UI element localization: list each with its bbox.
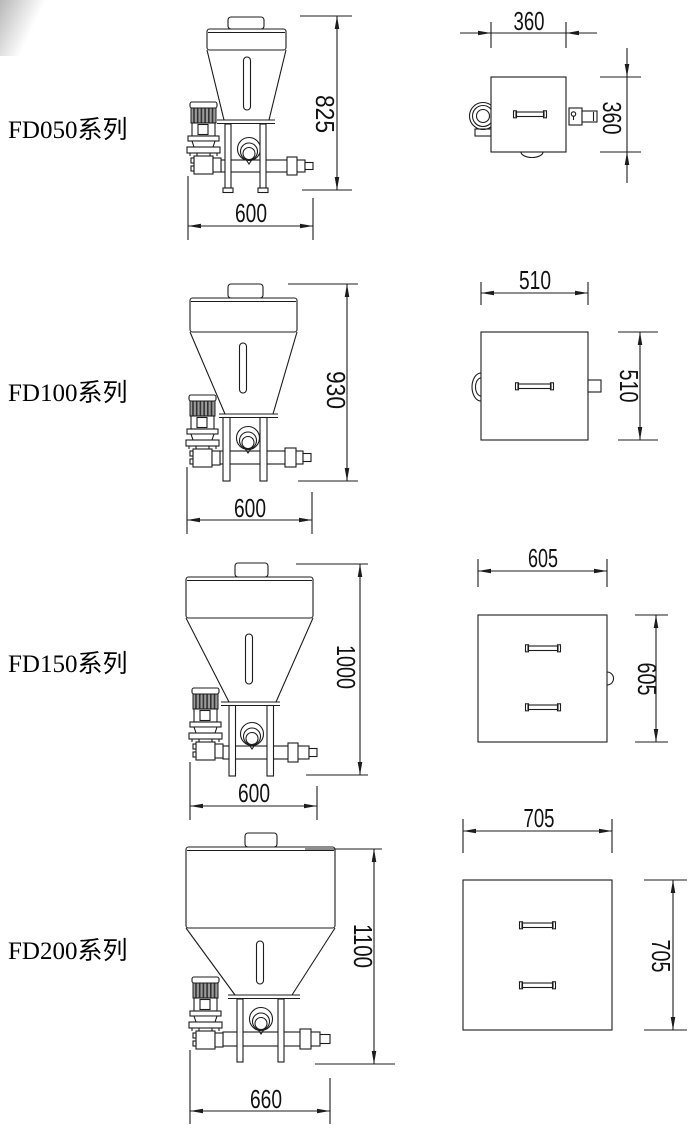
fd050-series-label: FD050系列 <box>8 116 127 144</box>
fd100-height-value: 930 <box>321 371 351 409</box>
row-fd150: FD150系列 1000 600 605 605 <box>8 543 668 820</box>
fd050-front-view <box>187 17 313 193</box>
fd200-topview-width-value: 705 <box>524 803 555 833</box>
fd100-top-view <box>472 282 658 440</box>
fd150-series-label: FD150系列 <box>8 650 127 678</box>
fd150-front-view <box>186 563 317 776</box>
fd150-width-value: 600 <box>238 778 270 808</box>
fd100-front-view <box>186 284 311 481</box>
fd100-width-value: 600 <box>234 493 266 523</box>
row-fd050: FD050系列 825 600 360 360 <box>8 6 641 240</box>
fd150-topview-depth-value: 605 <box>632 663 662 696</box>
fd050-height-value: 825 <box>310 95 340 133</box>
fd200-front-view <box>186 833 335 1062</box>
fd150-topview-width-value: 605 <box>528 543 558 573</box>
fd200-topview-depth-value: 705 <box>646 940 676 973</box>
fd200-series-label: FD200系列 <box>8 937 127 965</box>
fd200-top-view <box>463 819 687 1030</box>
fd200-height-value: 1100 <box>348 924 378 968</box>
fd100-topview-width-value: 510 <box>519 265 551 295</box>
dimension-drawing: FD050系列 825 600 360 360 FD100系列 930 600 … <box>0 0 700 1131</box>
fd100-series-label: FD100系列 <box>8 379 127 407</box>
fd200-width-value: 660 <box>250 1084 282 1114</box>
fd100-topview-depth-value: 510 <box>614 370 644 403</box>
fd050-topview-width-value: 360 <box>514 6 545 36</box>
fd150-height-value: 1000 <box>331 645 361 689</box>
datasheet-page: FD050系列 825 600 360 360 FD100系列 930 600 … <box>0 0 700 1131</box>
row-fd200: FD200系列 1100 660 705 705 <box>8 803 687 1124</box>
fd050-width-value: 600 <box>235 198 267 228</box>
fd050-topview-depth-value: 360 <box>597 102 627 135</box>
fd150-top-view <box>478 559 668 742</box>
row-fd100: FD100系列 930 600 510 510 <box>8 265 658 534</box>
